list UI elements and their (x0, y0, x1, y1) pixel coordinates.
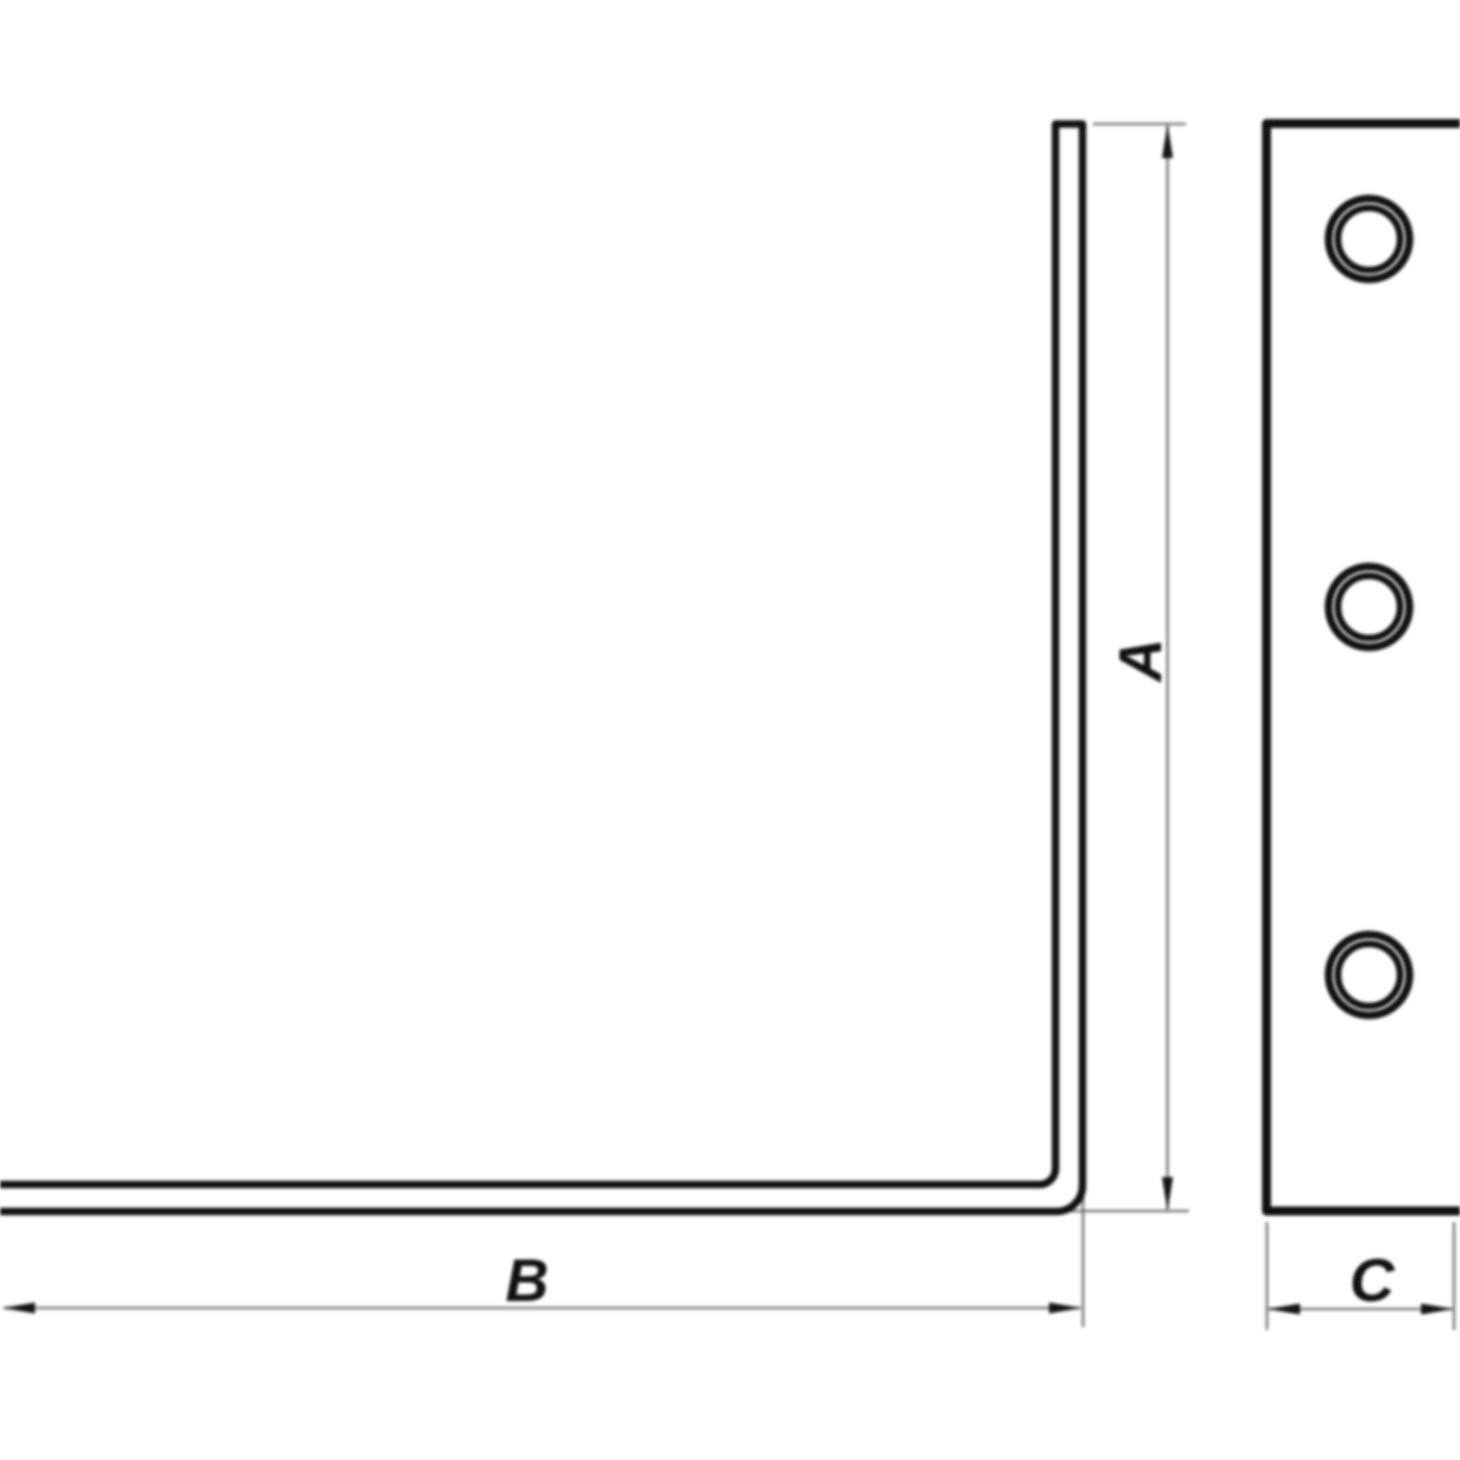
svg-text:A: A (1107, 638, 1174, 683)
svg-text:B: B (505, 1247, 548, 1314)
svg-text:C: C (1350, 1247, 1397, 1314)
